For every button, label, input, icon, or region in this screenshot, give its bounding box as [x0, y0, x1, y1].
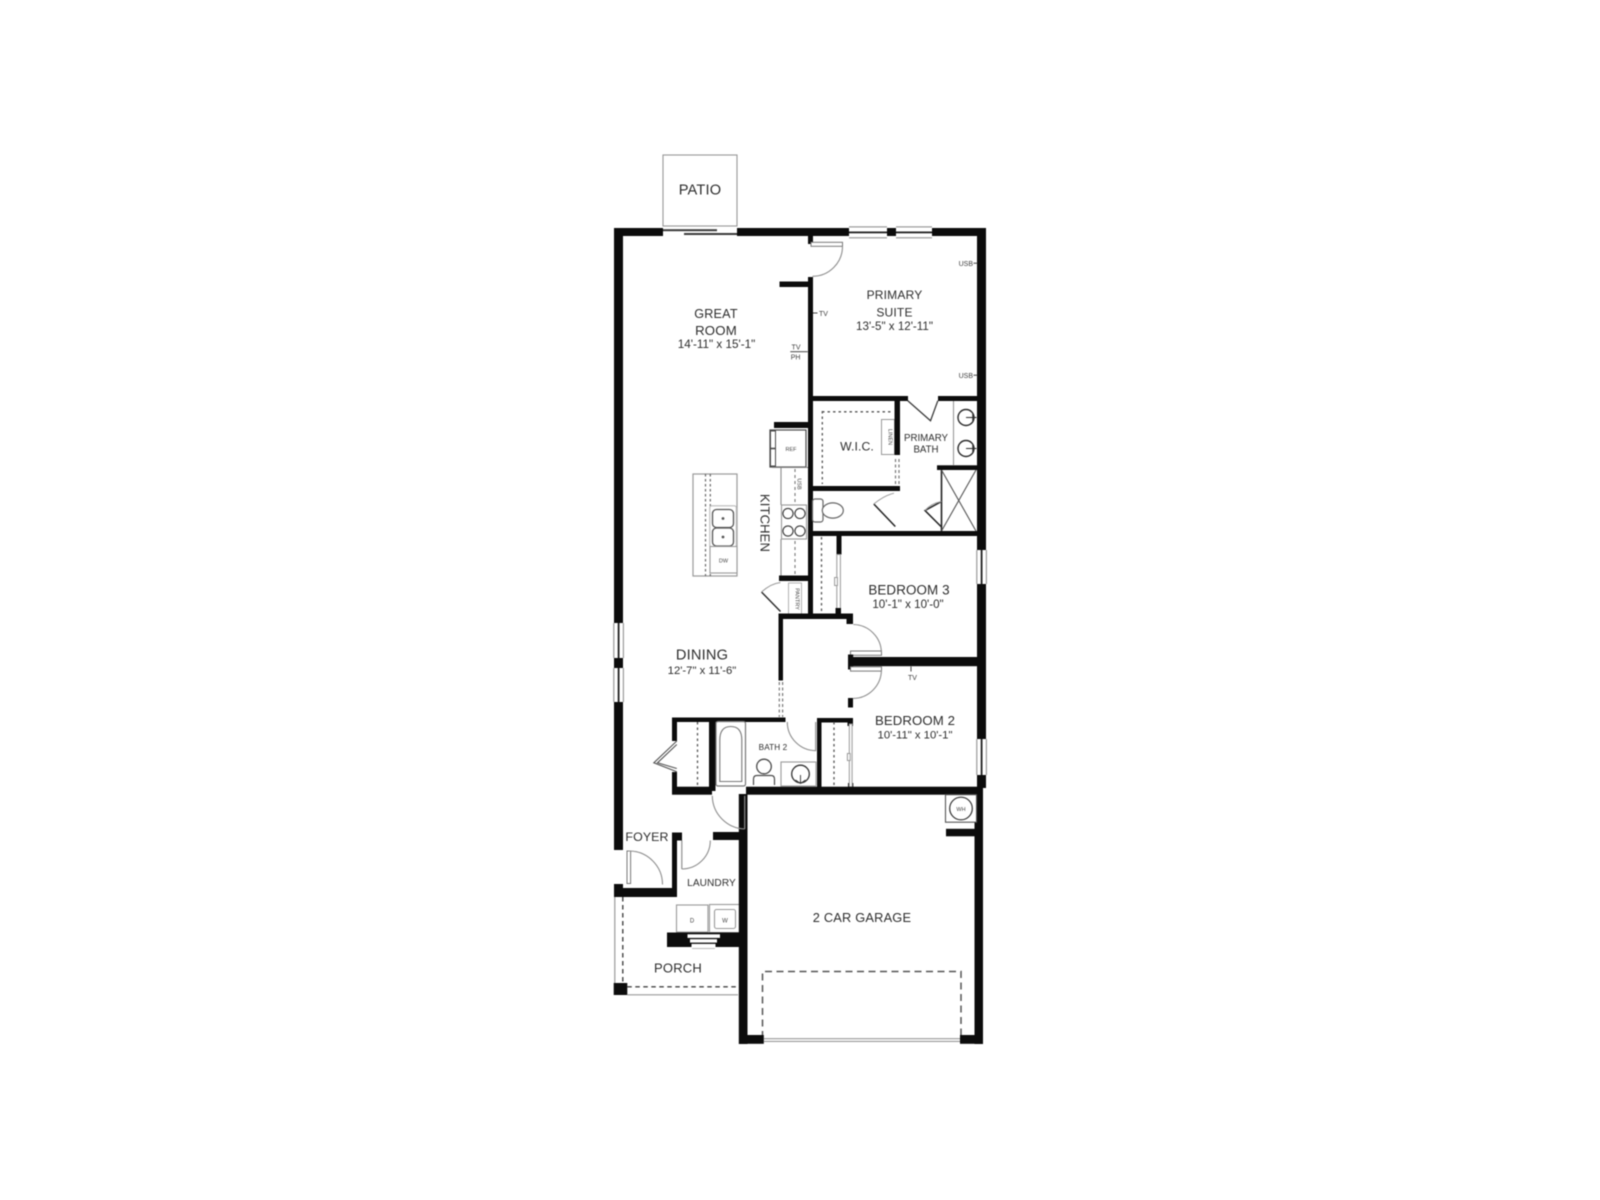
- svg-text:TV: TV: [792, 345, 801, 352]
- svg-text:ROOM: ROOM: [695, 323, 737, 338]
- svg-text:WH: WH: [956, 807, 965, 813]
- svg-text:PH: PH: [791, 355, 801, 362]
- svg-text:SUITE: SUITE: [876, 306, 912, 320]
- svg-text:BEDROOM 2: BEDROOM 2: [875, 713, 955, 728]
- svg-text:TV: TV: [819, 311, 828, 318]
- svg-text:13'-5" x 12'-11": 13'-5" x 12'-11": [856, 320, 933, 333]
- svg-text:10'-1" x 10'-0": 10'-1" x 10'-0": [872, 598, 943, 611]
- svg-text:12'-7" x 11'-6": 12'-7" x 11'-6": [668, 665, 737, 677]
- svg-text:BATH: BATH: [913, 445, 938, 456]
- svg-text:14'-11" x 15'-1": 14'-11" x 15'-1": [678, 338, 756, 351]
- svg-text:USB: USB: [959, 373, 974, 380]
- svg-text:BATH 2: BATH 2: [759, 743, 788, 752]
- svg-text:PRIMARY: PRIMARY: [904, 433, 949, 444]
- svg-text:LINEN: LINEN: [886, 429, 892, 445]
- svg-text:PATIO: PATIO: [679, 183, 722, 199]
- svg-text:REF: REF: [786, 447, 798, 453]
- svg-text:D: D: [690, 919, 695, 925]
- svg-text:FOYER: FOYER: [625, 830, 668, 844]
- svg-text:DINING: DINING: [676, 648, 728, 664]
- svg-text:KITCHEN: KITCHEN: [758, 494, 773, 552]
- svg-text:10'-11" x 10'-1": 10'-11" x 10'-1": [878, 730, 953, 742]
- svg-text:USB: USB: [796, 478, 802, 490]
- svg-text:W.I.C.: W.I.C.: [840, 440, 874, 454]
- svg-text:W: W: [722, 919, 728, 925]
- svg-text:BEDROOM 3: BEDROOM 3: [868, 583, 949, 598]
- svg-text:TV: TV: [908, 675, 917, 682]
- svg-text:USB: USB: [959, 261, 974, 268]
- svg-text:PRIMARY: PRIMARY: [867, 288, 923, 302]
- svg-text:PANTRY: PANTRY: [793, 588, 799, 610]
- svg-text:GREAT: GREAT: [694, 307, 738, 321]
- svg-text:DW: DW: [719, 559, 729, 565]
- svg-text:LAUNDRY: LAUNDRY: [687, 878, 736, 889]
- svg-text:2 CAR GARAGE: 2 CAR GARAGE: [813, 910, 911, 925]
- svg-text:PORCH: PORCH: [654, 961, 702, 976]
